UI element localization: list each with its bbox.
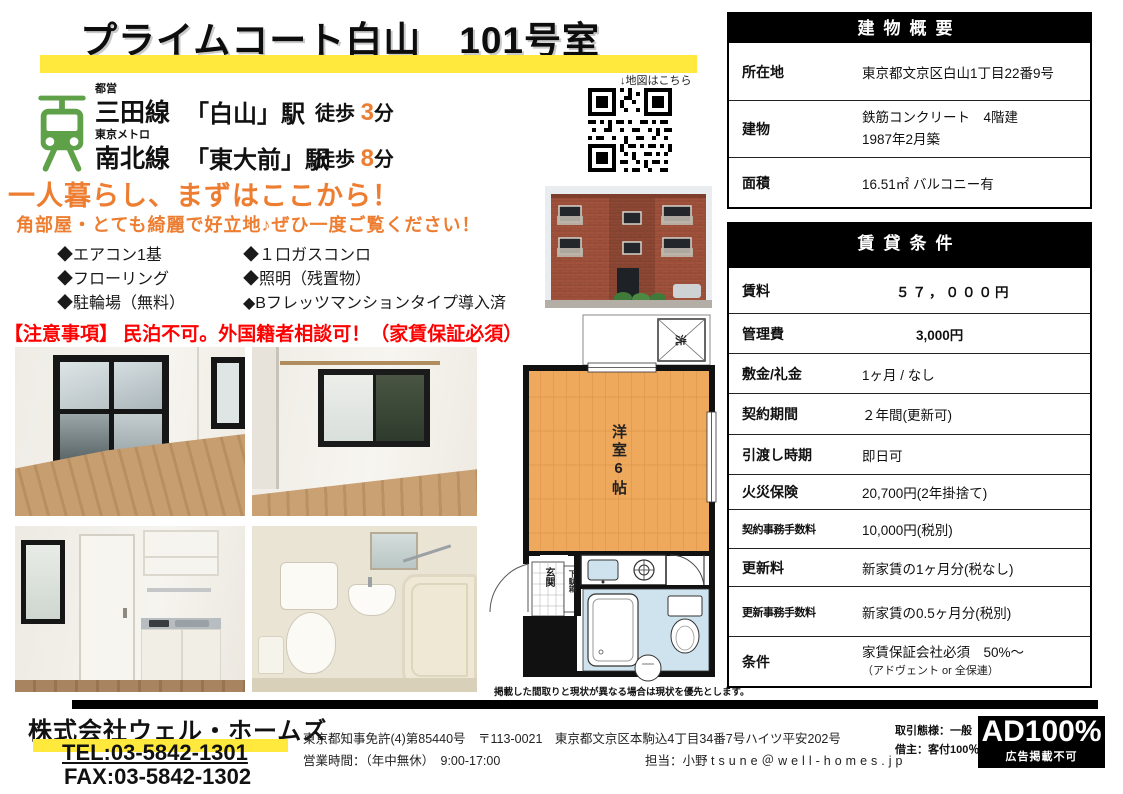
cabinet-seam bbox=[181, 630, 183, 681]
cabinet-shelf-line bbox=[145, 556, 217, 558]
bath-floor bbox=[252, 678, 477, 692]
entrance-label: 玄関 bbox=[541, 567, 556, 587]
window-pane bbox=[114, 362, 163, 409]
row-label: 所在地 bbox=[729, 62, 854, 82]
rental-terms-table: 賃貸条件 賃料 ５７，０００円 管理費 3,000円 敷金/礼金 1ヶ月 / な… bbox=[727, 222, 1092, 688]
feature-item: ◆フローリング bbox=[57, 268, 185, 292]
caution-note: 【注意事項】 民泊不可。外国籍者相談可！（家賃保証必須） bbox=[4, 319, 522, 346]
ad-badge-box: AD100% 広告掲載不可 bbox=[978, 716, 1105, 768]
walk-label: 徒歩 bbox=[315, 103, 355, 125]
contact-line: 担当：小野 tsune＠well-homes.jp bbox=[645, 750, 907, 769]
ad-badge: AD100% bbox=[978, 716, 1105, 748]
row-value: 16.51㎡ バルコニー有 bbox=[854, 173, 994, 193]
bathtub-rim bbox=[411, 583, 468, 677]
row-value-line2: 1987年2月築 bbox=[862, 129, 1018, 151]
table-row: 更新料 新家賃の1ヶ月分(税なし) bbox=[729, 548, 1090, 586]
walk-label: 徒歩 bbox=[315, 149, 355, 171]
title-underline-bar bbox=[40, 55, 697, 73]
table-row: 管理費 3,000円 bbox=[729, 313, 1090, 353]
wash-basin bbox=[348, 584, 396, 616]
feature-item: ◆エアコン1基 bbox=[57, 244, 185, 268]
contact-person: 担当：小野 bbox=[645, 754, 708, 768]
walk-minutes: 8 bbox=[361, 145, 374, 172]
access-station-1: 「白山」駅 bbox=[185, 94, 305, 129]
basin-faucet bbox=[368, 577, 372, 587]
row-label: 契約期間 bbox=[729, 404, 854, 424]
table-header: 建物概要 bbox=[729, 14, 1090, 43]
table-row: 建物 鉄筋コンクリート 4階建 1987年2月築 bbox=[729, 100, 1090, 157]
feature-item: ◆１口ガスコンロ bbox=[243, 244, 506, 268]
row-value: 鉄筋コンクリート 4階建 1987年2月築 bbox=[854, 107, 1018, 150]
toilet-bowl bbox=[286, 612, 336, 674]
shoebox-label: 下駄箱 bbox=[567, 570, 578, 593]
bathroom-mirror bbox=[370, 532, 418, 570]
toilet-tank bbox=[280, 562, 338, 610]
building-photo bbox=[545, 186, 712, 308]
access-walk-2: 徒歩 8分 bbox=[315, 143, 394, 173]
trash-bin bbox=[258, 636, 284, 674]
row-label: 更新料 bbox=[729, 558, 854, 578]
room-label: 洋室6帖 bbox=[608, 424, 629, 498]
row-value: 20,700円(2年掛捨て) bbox=[854, 482, 987, 502]
door-handle bbox=[123, 608, 127, 618]
row-value: 家賃保証会社必須 50%～ （アドヴェント or 全保連） bbox=[854, 643, 1024, 680]
photo-window-small bbox=[21, 540, 65, 624]
row-value: 東京都文京区白山1丁目22番9号 bbox=[854, 62, 1054, 82]
row-value: 10,000円(税別) bbox=[854, 519, 953, 539]
sink-basin bbox=[175, 620, 209, 627]
row-label: 条件 bbox=[729, 652, 854, 672]
window-pane bbox=[60, 362, 109, 409]
row-label: 賃料 bbox=[729, 281, 854, 301]
row-label: 敷金/礼金 bbox=[729, 364, 854, 384]
table-row: 契約期間 ２年間(更新可) bbox=[729, 393, 1090, 434]
table-row: 契約事務手数料 10,000円(税別) bbox=[729, 509, 1090, 548]
white-door bbox=[79, 534, 135, 682]
walk-minutes: 3 bbox=[361, 99, 374, 126]
features-col1: ◆エアコン1基 ◆フローリング ◆駐輪場（無料） bbox=[57, 244, 185, 316]
photo-kitchen bbox=[15, 526, 245, 692]
stove-top bbox=[149, 620, 169, 627]
photo-wood-floor bbox=[15, 680, 245, 692]
train-icon bbox=[33, 84, 91, 176]
photo-room-2 bbox=[252, 347, 477, 516]
floor-plan: 洗 bbox=[488, 312, 730, 686]
row-label: 更新事務手数料 bbox=[729, 604, 854, 620]
walk-unit: 分 bbox=[374, 149, 394, 171]
row-label: 火災保険 bbox=[729, 482, 854, 502]
row-value: 新家賃の0.5ヶ月分(税別) bbox=[854, 602, 1011, 622]
row-value-line2: （アドヴェント or 全保連） bbox=[862, 663, 1024, 680]
deal-type-block: 取引態様：一般 借主：客付100％ bbox=[895, 722, 979, 759]
table-row: 条件 家賃保証会社必須 50%～ （アドヴェント or 全保連） bbox=[729, 636, 1090, 686]
deal-note: 借主：客付100％ bbox=[895, 741, 979, 760]
feature-item: ◆Bフレッツマンションタイプ導入済 bbox=[243, 292, 506, 316]
deal-type: 取引態様：一般 bbox=[895, 722, 979, 741]
table-row: 引渡し時期 即日可 bbox=[729, 434, 1090, 474]
lower-cabinet bbox=[141, 629, 221, 682]
row-value: 即日可 bbox=[854, 445, 903, 465]
tel-number: TEL:03-5842-1301 bbox=[62, 740, 248, 766]
row-label: 建物 bbox=[729, 119, 854, 139]
table-row: 敷金/礼金 1ヶ月 / なし bbox=[729, 353, 1090, 393]
catch-headline: 一人暮らし、まずはここから！ bbox=[8, 174, 400, 213]
curtain-rail bbox=[280, 361, 440, 365]
photo-room-1 bbox=[15, 347, 245, 516]
table-row: 火災保険 20,700円(2年掛捨て) bbox=[729, 474, 1090, 509]
row-label: 面積 bbox=[729, 173, 854, 193]
license-line: 東京都知事免許(4)第85440号 〒113-0021 東京都文京区本駒込4丁目… bbox=[303, 728, 841, 747]
row-value: 新家賃の1ヶ月分(税なし) bbox=[854, 558, 1014, 578]
table-header: 賃貸条件 bbox=[729, 224, 1090, 268]
catch-subline: 角部屋・とても綺麗で好立地♪ぜひ一度ご覧ください！ bbox=[16, 211, 481, 237]
washer-label: 洗 bbox=[674, 335, 688, 346]
fax-number: FAX:03-5842-1302 bbox=[64, 764, 251, 790]
feature-item: ◆駐輪場（無料） bbox=[57, 292, 185, 316]
window-pane bbox=[324, 375, 376, 441]
map-note: ↓地図はこちら bbox=[620, 72, 692, 88]
counter-sink bbox=[141, 618, 221, 629]
access-walk-1: 徒歩 3分 bbox=[315, 97, 394, 127]
row-value: ５７，０００円 bbox=[854, 281, 1012, 301]
table-row: 賃料 ５７，０００円 bbox=[729, 268, 1090, 313]
table-row: 所在地 東京都文京区白山1丁目22番9号 bbox=[729, 43, 1090, 100]
row-value-line1: 家賃保証会社必須 50%～ bbox=[862, 643, 1024, 663]
table-row: 面積 16.51㎡ バルコニー有 bbox=[729, 157, 1090, 207]
photo-bathroom bbox=[252, 526, 477, 692]
photo-window-small bbox=[211, 357, 245, 429]
contact-email: tsune＠well-homes.jp bbox=[711, 754, 907, 768]
access-line-1: 三田線 bbox=[95, 93, 170, 129]
row-label: 管理費 bbox=[729, 324, 854, 344]
table-row: 更新事務手数料 新家賃の0.5ヶ月分(税別) bbox=[729, 586, 1090, 636]
glass-door-edge bbox=[252, 347, 279, 489]
access-line-2: 南北線 bbox=[95, 139, 170, 175]
row-value-line1: 鉄筋コンクリート 4階建 bbox=[862, 107, 1018, 129]
divider-bar bbox=[72, 700, 1098, 709]
access-station-2: 「東大前」駅 bbox=[185, 140, 329, 175]
bathtub bbox=[402, 574, 477, 686]
qr-code bbox=[588, 88, 672, 172]
hours-line: 営業時間：（年中無休） 9:00-17:00 bbox=[303, 750, 500, 769]
row-label: 引渡し時期 bbox=[729, 445, 854, 465]
row-value: 3,000円 bbox=[854, 324, 963, 344]
wall-shelf bbox=[147, 588, 211, 592]
flyer-page: プライムコート白山 101号室 ↓地図はこちら 都営 三田線 「白山」駅 徒歩 … bbox=[0, 0, 1123, 794]
row-label: 契約事務手数料 bbox=[729, 521, 854, 537]
photo-window bbox=[318, 369, 430, 447]
ad-note: 広告掲載不可 bbox=[978, 748, 1105, 764]
building-overview-table: 建物概要 所在地 東京都文京区白山1丁目22番9号 建物 鉄筋コンクリート 4階… bbox=[727, 12, 1092, 209]
features-col2: ◆１口ガスコンロ ◆照明（残置物） ◆Bフレッツマンションタイプ導入済 bbox=[243, 244, 506, 316]
upper-cabinet bbox=[143, 530, 219, 576]
floor-plan-note: 掲載した間取りと現状が異なる場合は現状を優先とします。 bbox=[494, 684, 750, 698]
row-value: ２年間(更新可) bbox=[854, 404, 952, 424]
feature-item: ◆照明（残置物） bbox=[243, 268, 506, 292]
window-pane bbox=[376, 375, 425, 441]
row-value: 1ヶ月 / なし bbox=[854, 364, 935, 384]
walk-unit: 分 bbox=[374, 103, 394, 125]
